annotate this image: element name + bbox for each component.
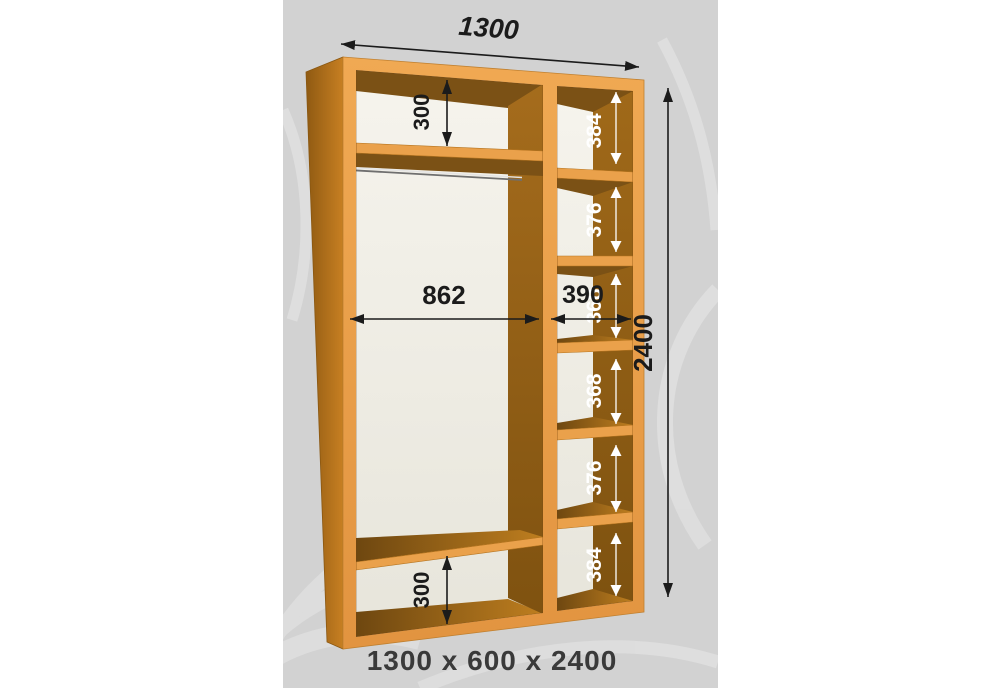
section-label: 368 — [583, 373, 606, 408]
dimension-label-2400: 2400 — [628, 314, 658, 372]
dimension-label-300-top: 300 — [409, 94, 434, 131]
left-compartment — [348, 70, 543, 637]
right-shelf-column — [557, 86, 633, 611]
wardrobe-dimension-diagram-page: 384 376 368 368 376 384 1300 300 862 — [0, 0, 1000, 700]
shelf — [557, 256, 633, 266]
dimension-label-390: 390 — [562, 281, 604, 309]
wardrobe: 384 376 368 368 376 384 — [306, 57, 644, 649]
section-label: 376 — [583, 202, 606, 237]
section-label: 376 — [583, 460, 606, 495]
section-label: 384 — [583, 113, 606, 148]
size-caption: 1300 x 600 x 2400 — [367, 645, 618, 676]
dimension-label-1300: 1300 — [458, 11, 520, 46]
wardrobe-diagram-canvas: 384 376 368 368 376 384 1300 300 862 — [0, 0, 1000, 700]
dimension-label-300-bottom: 300 — [409, 572, 434, 609]
section-label: 384 — [583, 547, 606, 582]
dimension-label-862: 862 — [422, 280, 465, 310]
